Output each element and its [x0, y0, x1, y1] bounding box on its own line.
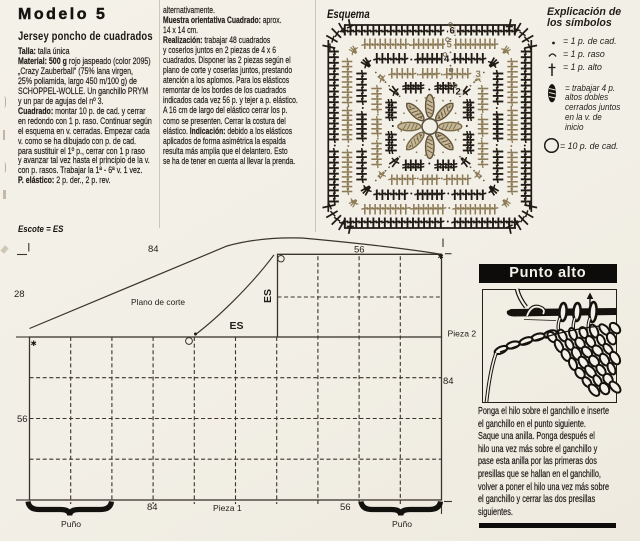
- svg-text:3: 3: [476, 69, 481, 80]
- svg-text:56: 56: [340, 502, 351, 513]
- svg-text:4: 4: [444, 54, 450, 65]
- svg-text:ES: ES: [262, 289, 274, 303]
- svg-text:28: 28: [14, 289, 25, 300]
- svg-text:2: 2: [456, 87, 461, 98]
- svg-text:Puño: Puño: [392, 519, 412, 529]
- svg-text:Pieza 1: Pieza 1: [213, 503, 242, 513]
- svg-text:56: 56: [17, 414, 28, 425]
- svg-text:ES: ES: [230, 320, 244, 332]
- svg-text:84: 84: [443, 376, 454, 387]
- svg-text:84: 84: [148, 244, 159, 255]
- svg-text:Plano de corte: Plano de corte: [131, 297, 185, 307]
- svg-text:84: 84: [147, 502, 158, 513]
- svg-text:56: 56: [354, 245, 365, 256]
- svg-text:6: 6: [450, 26, 455, 37]
- svg-text:Pieza 2: Pieza 2: [448, 329, 477, 339]
- svg-text:✱: ✱: [438, 252, 445, 261]
- svg-text:✱: ✱: [31, 339, 38, 348]
- svg-text:Puño: Puño: [61, 519, 81, 529]
